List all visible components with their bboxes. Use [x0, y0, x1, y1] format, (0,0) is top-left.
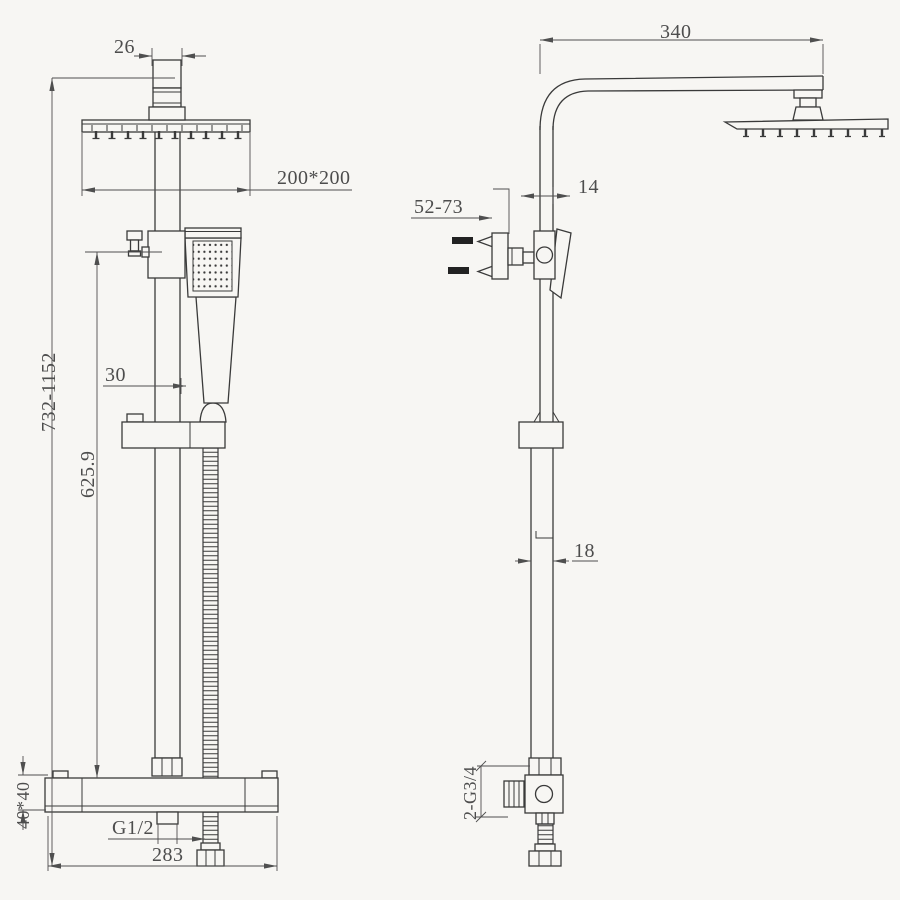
- wall-screw-top: [452, 237, 473, 244]
- hand-shower: [185, 228, 241, 422]
- hand-shower-cap: [185, 228, 241, 238]
- thermostatic-mixer: [45, 771, 278, 824]
- spray-face: [193, 241, 232, 291]
- valve-end-nut: [529, 851, 561, 866]
- valve-top-nut: [529, 758, 561, 775]
- dim-label-inlet-thread: 2-G3/4: [460, 766, 480, 820]
- mixer-right-button: [262, 771, 277, 778]
- diverter-knob: [127, 231, 142, 240]
- diverter-block: [127, 231, 185, 278]
- dim-label-handshower-offset: 30: [105, 364, 126, 386]
- dim-label-lower-pipe-width: 18: [574, 540, 595, 562]
- dim-label-valve-body: 40*40: [13, 782, 33, 830]
- bracket-prong-bottom: [478, 266, 493, 277]
- bracket-knob: [508, 248, 523, 265]
- side-view: 340 14 52-73 18 2-G3/4: [411, 21, 888, 866]
- riser-pipe-side-lower: [531, 448, 553, 758]
- dim-label-head-pipe: 26: [114, 36, 135, 58]
- dim-label-valve-width: 283: [152, 844, 184, 866]
- shower-technical-drawing: 26 732-1152 625.9 200*200 30 40*: [0, 0, 900, 900]
- head-connector-stub: [149, 60, 185, 120]
- dim-label-total-height: 732-1152: [38, 352, 60, 432]
- hose-end-nut: [197, 850, 224, 866]
- bracket-back-plate: [492, 233, 508, 279]
- handle-tip: [200, 403, 226, 422]
- mixer-body: [45, 778, 278, 812]
- riser-bottom-nut: [152, 758, 182, 776]
- mixer-left-button: [53, 771, 68, 778]
- dim-label-arm-length: 340: [660, 21, 692, 43]
- head-nozzles-side: [746, 129, 882, 136]
- rain-shower-head-side: [725, 119, 888, 137]
- dim-label-rail-height: 625.9: [77, 451, 99, 499]
- front-dimensions: 26 732-1152 625.9 200*200 30 40*: [13, 36, 352, 871]
- front-view: 26 732-1152 625.9 200*200 30 40*: [13, 36, 352, 871]
- hose-collar: [201, 843, 220, 850]
- head-ball-joint: [793, 90, 823, 120]
- valve-bottom-stub: [536, 813, 554, 824]
- dim-label-upper-pipe-width: 14: [578, 176, 599, 198]
- dim-label-wall-distance: 52-73: [414, 196, 463, 218]
- mixer-outlet-stub: [157, 812, 178, 824]
- telescopic-coupling: [519, 412, 563, 448]
- inlet-valve: [504, 758, 563, 866]
- drawing-canvas: 26 732-1152 625.9 200*200 30 40*: [0, 0, 900, 900]
- side-dimensions: 340 14 52-73 18 2-G3/4: [411, 21, 823, 822]
- wall-screw-bottom: [448, 267, 469, 274]
- dim-label-head-size: 200*200: [277, 167, 351, 189]
- dim-label-outlet-thread: G1/2: [112, 817, 154, 839]
- bracket-prong-top: [478, 236, 493, 247]
- valve-hose-section: [538, 824, 553, 844]
- hand-shower-handle: [196, 297, 236, 403]
- wall-bracket: [448, 229, 571, 298]
- holder-lock-tab: [127, 414, 143, 422]
